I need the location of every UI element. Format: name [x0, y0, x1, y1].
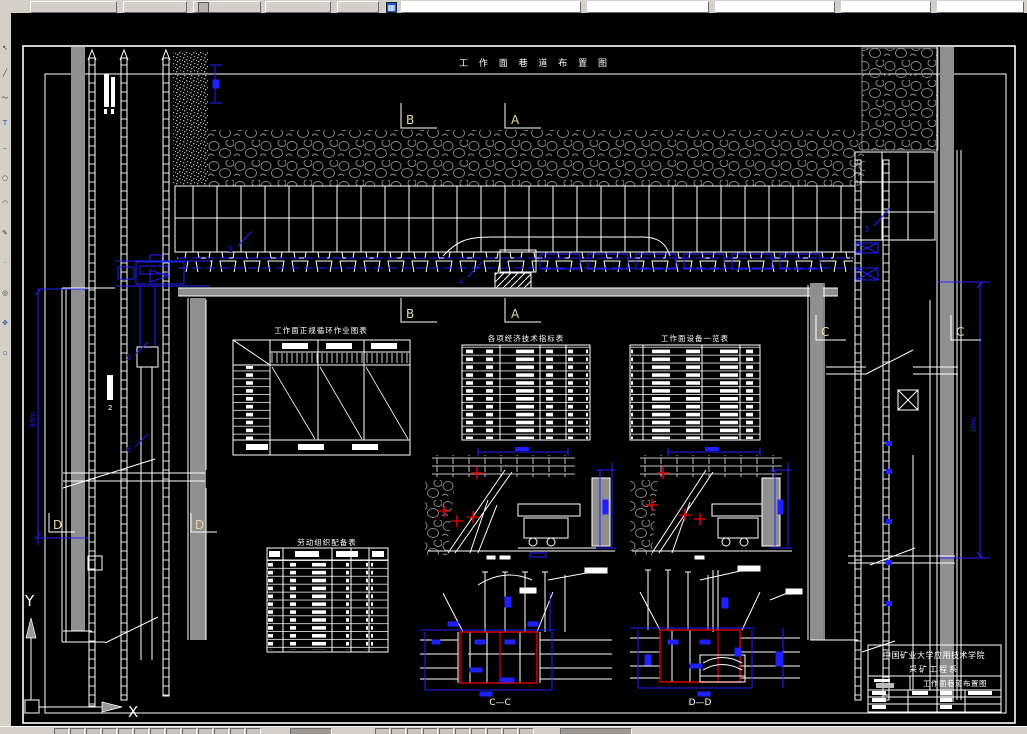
- cycle-table-title: 工作面正规循环作业图表: [274, 325, 368, 335]
- status-cell[interactable]: [423, 728, 438, 734]
- status-cell[interactable]: [503, 728, 518, 734]
- goaf-hatch-right: [862, 48, 938, 150]
- detail-cc-label: C—C: [489, 698, 511, 708]
- status-bar: [0, 726, 1027, 734]
- top-toolbar: ▦: [0, 0, 1027, 14]
- ucs-y-label: Y: [24, 592, 35, 610]
- toolbar-group[interactable]: [123, 1, 187, 13]
- stipple-hatch: [173, 52, 208, 185]
- text-tool-icon[interactable]: T: [0, 118, 10, 128]
- toolbar-group[interactable]: [587, 1, 709, 13]
- select-cursor-icon[interactable]: ↖: [0, 43, 10, 53]
- support-row: [175, 186, 855, 252]
- status-cell[interactable]: [290, 728, 332, 734]
- section-a-bottom: A: [511, 307, 520, 321]
- toolbar-group[interactable]: [841, 1, 931, 13]
- status-cell[interactable]: [102, 728, 117, 734]
- ucs-x-label: X: [128, 703, 138, 721]
- polyline-icon[interactable]: 〜: [0, 93, 10, 103]
- callout-4: 4: [459, 278, 464, 286]
- status-cell[interactable]: [560, 728, 632, 734]
- section-b-top: B: [406, 113, 414, 127]
- status-cell[interactable]: [487, 728, 502, 734]
- status-cell[interactable]: [519, 728, 534, 734]
- detail-dd-label: D—D: [689, 698, 712, 708]
- status-cell[interactable]: [150, 728, 165, 734]
- labor-table-title: 劳动组织配备表: [297, 537, 357, 547]
- status-cell[interactable]: [214, 728, 229, 734]
- toolbar-group[interactable]: [715, 1, 835, 13]
- status-cell[interactable]: [198, 728, 213, 734]
- callout-5: 5: [126, 353, 131, 362]
- legend-label: 2: [108, 404, 112, 412]
- section-d-right: D: [195, 518, 204, 532]
- clipboard-icon[interactable]: [198, 2, 209, 13]
- point-icon[interactable]: ·: [0, 258, 10, 268]
- status-cell[interactable]: [118, 728, 133, 734]
- status-cell[interactable]: [86, 728, 101, 734]
- title-block-drawing-name: 工作面巷道布置图: [923, 678, 987, 688]
- status-cell[interactable]: [182, 728, 197, 734]
- arc-icon[interactable]: ◠: [0, 198, 10, 208]
- circle-icon[interactable]: ○: [0, 173, 10, 183]
- section-c-left: C: [821, 325, 829, 339]
- status-cell[interactable]: [455, 728, 470, 734]
- section-c-right: C: [956, 325, 964, 339]
- toolbar-group[interactable]: [937, 1, 1024, 13]
- status-cell[interactable]: [54, 728, 69, 734]
- shearer-body: [495, 273, 531, 288]
- section-d-left: D: [53, 518, 62, 532]
- title-block-school: 中国矿业大学应用技术学院: [883, 650, 985, 660]
- grip-icon[interactable]: ▫: [0, 348, 10, 358]
- status-cell[interactable]: [407, 728, 422, 734]
- drawing-title: 工 作 面 巷 道 布 置 图: [459, 57, 611, 69]
- status-cell[interactable]: [375, 728, 390, 734]
- floor-bar: [178, 288, 838, 296]
- status-cell[interactable]: [246, 728, 261, 734]
- pan-icon[interactable]: ✥: [0, 318, 10, 328]
- dim-label-left: 30m: [29, 412, 37, 428]
- economic-table-title: 各项经济技术指标表: [488, 333, 565, 343]
- status-cell[interactable]: [439, 728, 454, 734]
- application-window: ▦ ↖ ╱ 〜 T – ○ ◠ ✎ · ◎ ✥ ▫: [0, 0, 1027, 734]
- dash-icon[interactable]: –: [0, 143, 10, 153]
- status-cell[interactable]: [134, 728, 149, 734]
- toolbar-group[interactable]: [337, 1, 379, 13]
- dim-label-right: 30m: [970, 417, 978, 433]
- status-cell[interactable]: [391, 728, 406, 734]
- equipment-table-title: 工作面设备一览表: [661, 333, 729, 343]
- callout-6: 6: [126, 445, 131, 454]
- status-cell[interactable]: [471, 728, 486, 734]
- toolbar-group[interactable]: [30, 1, 117, 13]
- section-b-bottom: B: [406, 307, 414, 321]
- goaf-hatch: [208, 130, 865, 186]
- economic-table: 各项经济技术指标表: [462, 333, 590, 440]
- toolbar-group[interactable]: [265, 1, 331, 13]
- section-a-top: A: [511, 113, 520, 127]
- status-cell[interactable]: [166, 728, 181, 734]
- cad-canvas[interactable]: 工 作 面 巷 道 布 置 图 2: [11, 13, 1027, 726]
- zoom-icon[interactable]: ◎: [0, 288, 10, 298]
- title-block-department: 采矿工程系: [909, 664, 959, 674]
- status-cell[interactable]: [70, 728, 85, 734]
- equipment-table: 工作面设备一览表: [630, 333, 760, 440]
- callout-3: 3: [864, 225, 869, 234]
- toolbar-group[interactable]: [401, 1, 581, 13]
- line-icon[interactable]: ╱: [0, 68, 10, 78]
- callout-1: 1: [228, 245, 233, 254]
- status-cell[interactable]: [230, 728, 245, 734]
- pencil-icon[interactable]: ✎: [0, 228, 10, 238]
